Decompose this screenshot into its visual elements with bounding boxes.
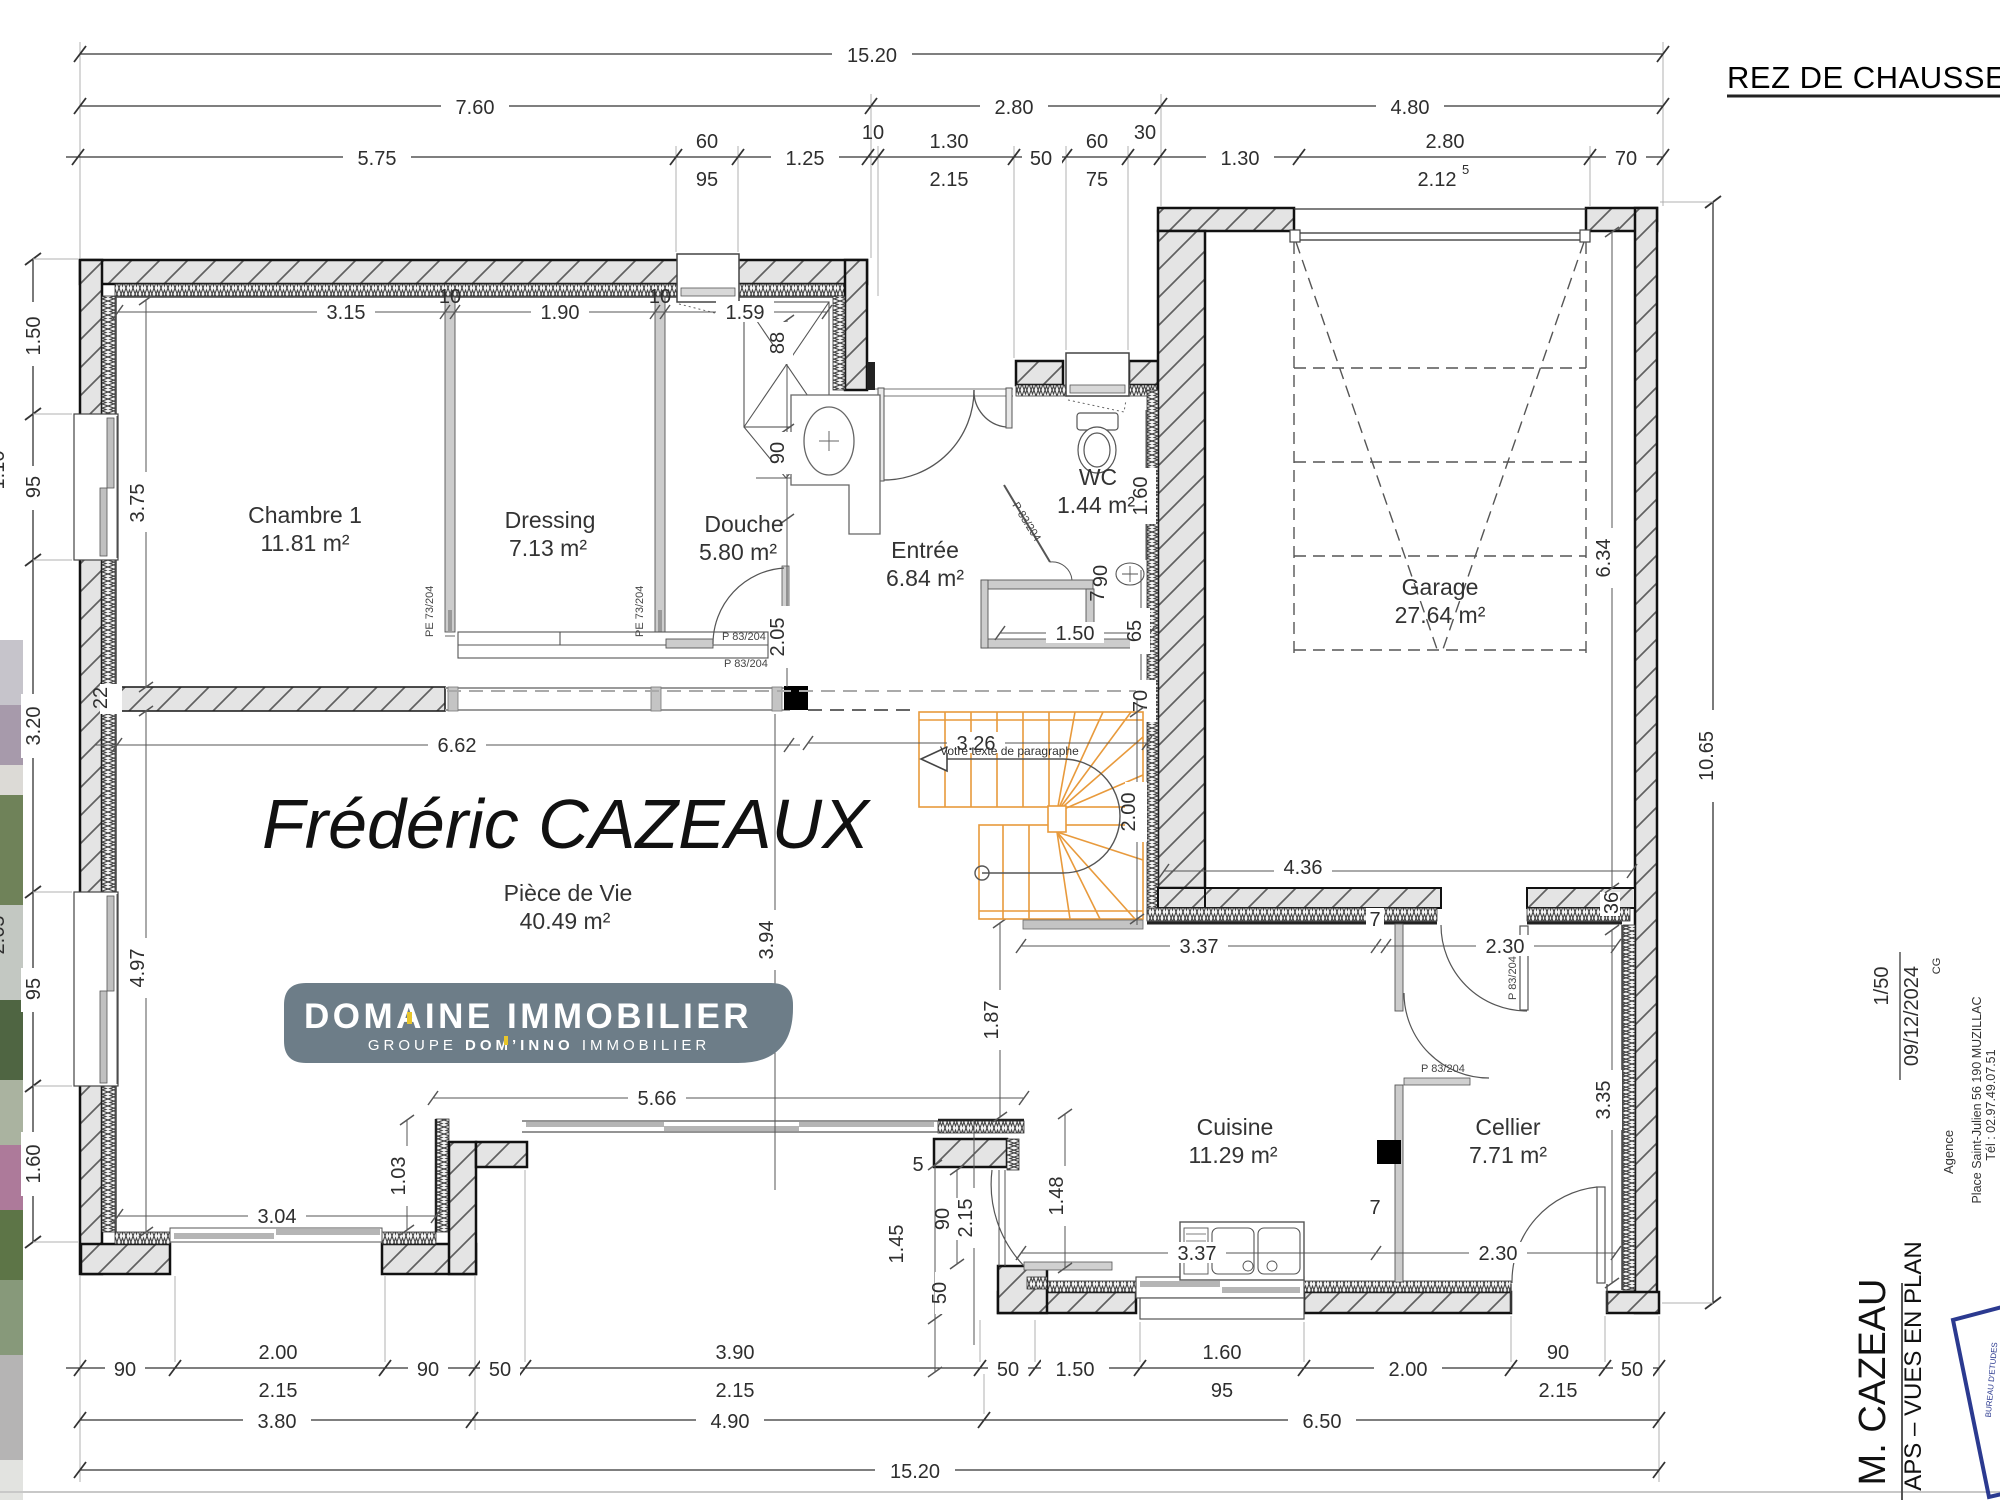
svg-text:1.87: 1.87 — [981, 1001, 1003, 1040]
svg-text:P 83/204: P 83/204 — [1421, 1063, 1465, 1075]
svg-text:2.00: 2.00 — [1118, 793, 1140, 832]
svg-text:1/50: 1/50 — [1871, 967, 1893, 1006]
svg-text:15.20: 15.20 — [890, 1461, 940, 1483]
svg-text:Entrée: Entrée — [891, 537, 959, 563]
svg-text:11.29 m²: 11.29 m² — [1188, 1142, 1277, 1168]
svg-text:2.65: 2.65 — [0, 916, 9, 955]
svg-text:1.60: 1.60 — [23, 1145, 45, 1184]
svg-text:1.10: 1.10 — [0, 451, 9, 490]
svg-text:Place Saint-Julien 56 190 MUZI: Place Saint-Julien 56 190 MUZILLAC — [1970, 996, 1984, 1203]
svg-text:90: 90 — [1547, 1342, 1569, 1364]
svg-text:6.50: 6.50 — [1303, 1411, 1342, 1433]
svg-text:P 83/204: P 83/204 — [1507, 956, 1519, 1000]
svg-text:1.48: 1.48 — [1046, 1177, 1068, 1216]
svg-text:30: 30 — [1134, 122, 1156, 144]
svg-text:3.75: 3.75 — [127, 484, 149, 523]
svg-text:3.15: 3.15 — [327, 302, 366, 324]
svg-text:M. CAZEAU: M. CAZEAU — [1852, 1279, 1894, 1486]
svg-text:PE 73/204: PE 73/204 — [634, 586, 646, 637]
svg-text:1.50: 1.50 — [1056, 623, 1095, 645]
svg-text:2.15: 2.15 — [259, 1380, 298, 1402]
svg-text:36: 36 — [1601, 892, 1623, 914]
svg-text:3.37: 3.37 — [1180, 936, 1219, 958]
svg-text:3.20: 3.20 — [23, 707, 45, 746]
svg-text:3.37: 3.37 — [1178, 1243, 1217, 1265]
svg-text:3.80: 3.80 — [258, 1411, 297, 1433]
svg-text:Agence: Agence — [1941, 1130, 1956, 1174]
svg-text:Tél : 02.97.49.07.51: Tél : 02.97.49.07.51 — [1984, 1049, 1998, 1160]
svg-text:Chambre 1: Chambre 1 — [248, 502, 362, 528]
svg-text:10: 10 — [439, 286, 461, 308]
svg-text:5.80 m²: 5.80 m² — [699, 539, 777, 565]
svg-text:6.62: 6.62 — [438, 735, 477, 757]
svg-text:27.64 m²: 27.64 m² — [1395, 602, 1486, 628]
svg-text:95: 95 — [696, 169, 718, 191]
svg-text:50: 50 — [1030, 148, 1052, 170]
svg-text:APS – VUES EN PLAN: APS – VUES EN PLAN — [1900, 1241, 1927, 1490]
svg-text:95: 95 — [1211, 1380, 1233, 1402]
svg-text:P 83/204: P 83/204 — [724, 658, 768, 670]
svg-text:3.04: 3.04 — [258, 1206, 297, 1228]
svg-text:2.15: 2.15 — [955, 1199, 977, 1238]
svg-text:50: 50 — [997, 1359, 1019, 1381]
svg-text:60: 60 — [696, 131, 718, 153]
svg-text:7: 7 — [1087, 590, 1109, 601]
svg-text:Cellier: Cellier — [1475, 1114, 1541, 1140]
svg-text:90: 90 — [114, 1359, 136, 1381]
svg-text:2.80: 2.80 — [995, 97, 1034, 119]
svg-text:2.12: 2.12 — [1418, 169, 1457, 191]
svg-text:1.45: 1.45 — [886, 1225, 908, 1264]
svg-text:1.30: 1.30 — [1221, 148, 1260, 170]
svg-text:7.71 m²: 7.71 m² — [1469, 1142, 1547, 1168]
svg-text:95: 95 — [23, 476, 45, 498]
svg-text:11.81 m²: 11.81 m² — [260, 530, 349, 556]
svg-text:Cuisine: Cuisine — [1197, 1114, 1274, 1140]
svg-text:4.97: 4.97 — [127, 949, 149, 988]
svg-text:2.15: 2.15 — [930, 169, 969, 191]
svg-text:7.13 m²: 7.13 m² — [509, 535, 587, 561]
svg-text:1.50: 1.50 — [1056, 1359, 1095, 1381]
svg-text:2.15: 2.15 — [716, 1380, 755, 1402]
svg-text:2.80: 2.80 — [1426, 131, 1465, 153]
svg-text:5.66: 5.66 — [638, 1088, 677, 1110]
svg-text:1.30: 1.30 — [930, 131, 969, 153]
svg-text:60: 60 — [1086, 131, 1108, 153]
svg-text:3.35: 3.35 — [1593, 1081, 1615, 1120]
svg-text:88: 88 — [767, 332, 789, 354]
svg-text:90: 90 — [932, 1208, 954, 1230]
svg-text:65: 65 — [1124, 620, 1146, 642]
svg-text:WC: WC — [1079, 464, 1117, 490]
svg-text:4.80: 4.80 — [1391, 97, 1430, 119]
svg-text:90: 90 — [767, 442, 789, 464]
svg-text:4.90: 4.90 — [711, 1411, 750, 1433]
svg-text:50: 50 — [1621, 1359, 1643, 1381]
svg-text:5.75: 5.75 — [358, 148, 397, 170]
svg-text:70: 70 — [1615, 148, 1637, 170]
svg-text:DOMAINE IMMOBILIER: DOMAINE IMMOBILIER — [304, 997, 752, 1036]
svg-text:Votre texte de paragraphe: Votre texte de paragraphe — [940, 744, 1079, 758]
svg-text:Douche: Douche — [704, 511, 783, 537]
svg-text:90: 90 — [1090, 565, 1112, 587]
svg-text:10: 10 — [649, 286, 671, 308]
svg-text:1.59: 1.59 — [726, 302, 765, 324]
svg-text:2.30: 2.30 — [1479, 1243, 1518, 1265]
svg-text:6.84 m²: 6.84 m² — [886, 565, 964, 591]
svg-text:1.90: 1.90 — [541, 302, 580, 324]
svg-text:5: 5 — [1462, 162, 1469, 177]
svg-text:50: 50 — [489, 1359, 511, 1381]
svg-text:Garage: Garage — [1402, 574, 1479, 600]
svg-text:GROUPE DOM’INNO IMMOBILIER: GROUPE DOM’INNO IMMOBILIER — [368, 1037, 710, 1054]
svg-text:09/12/2024: 09/12/2024 — [1901, 966, 1923, 1066]
svg-text:1.25: 1.25 — [786, 148, 825, 170]
svg-text:22: 22 — [90, 687, 112, 709]
svg-text:75: 75 — [1086, 169, 1108, 191]
svg-text:15.20: 15.20 — [847, 45, 897, 67]
svg-text:7: 7 — [1369, 909, 1380, 931]
svg-text:P 83/204: P 83/204 — [722, 631, 766, 643]
svg-text:40.49 m²: 40.49 m² — [520, 908, 611, 934]
svg-text:3.94: 3.94 — [756, 921, 778, 960]
svg-text:10: 10 — [862, 122, 884, 144]
svg-text:CG: CG — [1931, 958, 1943, 975]
svg-text:7.60: 7.60 — [456, 97, 495, 119]
svg-text:6.34: 6.34 — [1593, 539, 1615, 578]
svg-text:Dressing: Dressing — [505, 507, 596, 533]
svg-text:50: 50 — [929, 1282, 951, 1304]
svg-text:3.90: 3.90 — [716, 1342, 755, 1364]
svg-text:1.60: 1.60 — [1203, 1342, 1242, 1364]
svg-text:2.15: 2.15 — [1539, 1380, 1578, 1402]
svg-text:Frédéric CAZEAUX: Frédéric CAZEAUX — [262, 785, 871, 863]
svg-text:5: 5 — [912, 1154, 923, 1176]
svg-text:2.30: 2.30 — [1486, 936, 1525, 958]
svg-text:PE 73/204: PE 73/204 — [424, 586, 436, 637]
svg-text:2.00: 2.00 — [1389, 1359, 1428, 1381]
svg-text:95: 95 — [23, 978, 45, 1000]
svg-text:4.36: 4.36 — [1284, 857, 1323, 879]
svg-text:1.50: 1.50 — [23, 317, 45, 356]
svg-text:1.44 m²: 1.44 m² — [1057, 492, 1135, 518]
svg-text:1.03: 1.03 — [388, 1157, 410, 1196]
svg-text:2.00: 2.00 — [259, 1342, 298, 1364]
svg-text:Pièce de Vie: Pièce de Vie — [504, 880, 633, 906]
svg-text:7: 7 — [1369, 1197, 1380, 1219]
svg-text:90: 90 — [417, 1359, 439, 1381]
svg-text:REZ DE CHAUSSEE: REZ DE CHAUSSEE — [1727, 60, 2000, 95]
svg-text:10.65: 10.65 — [1696, 731, 1718, 781]
svg-text:2.05: 2.05 — [767, 618, 789, 657]
